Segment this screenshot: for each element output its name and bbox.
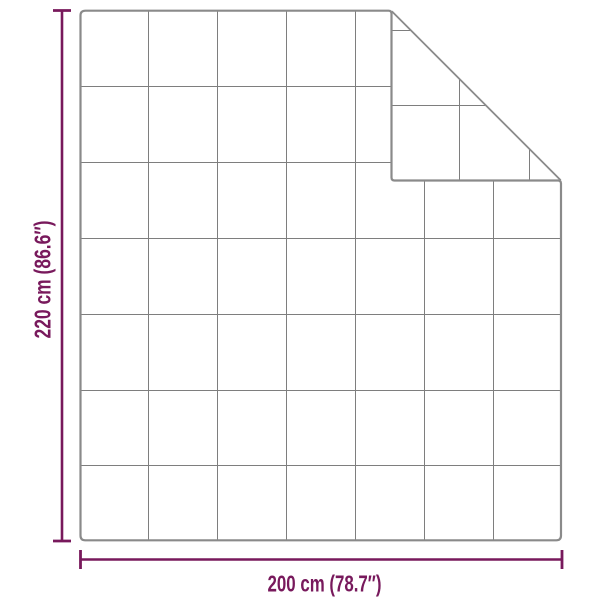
svg-text:220 cm (86.6″): 220 cm (86.6″) xyxy=(30,221,56,339)
svg-text:200 cm (78.7″): 200 cm (78.7″) xyxy=(268,570,382,596)
